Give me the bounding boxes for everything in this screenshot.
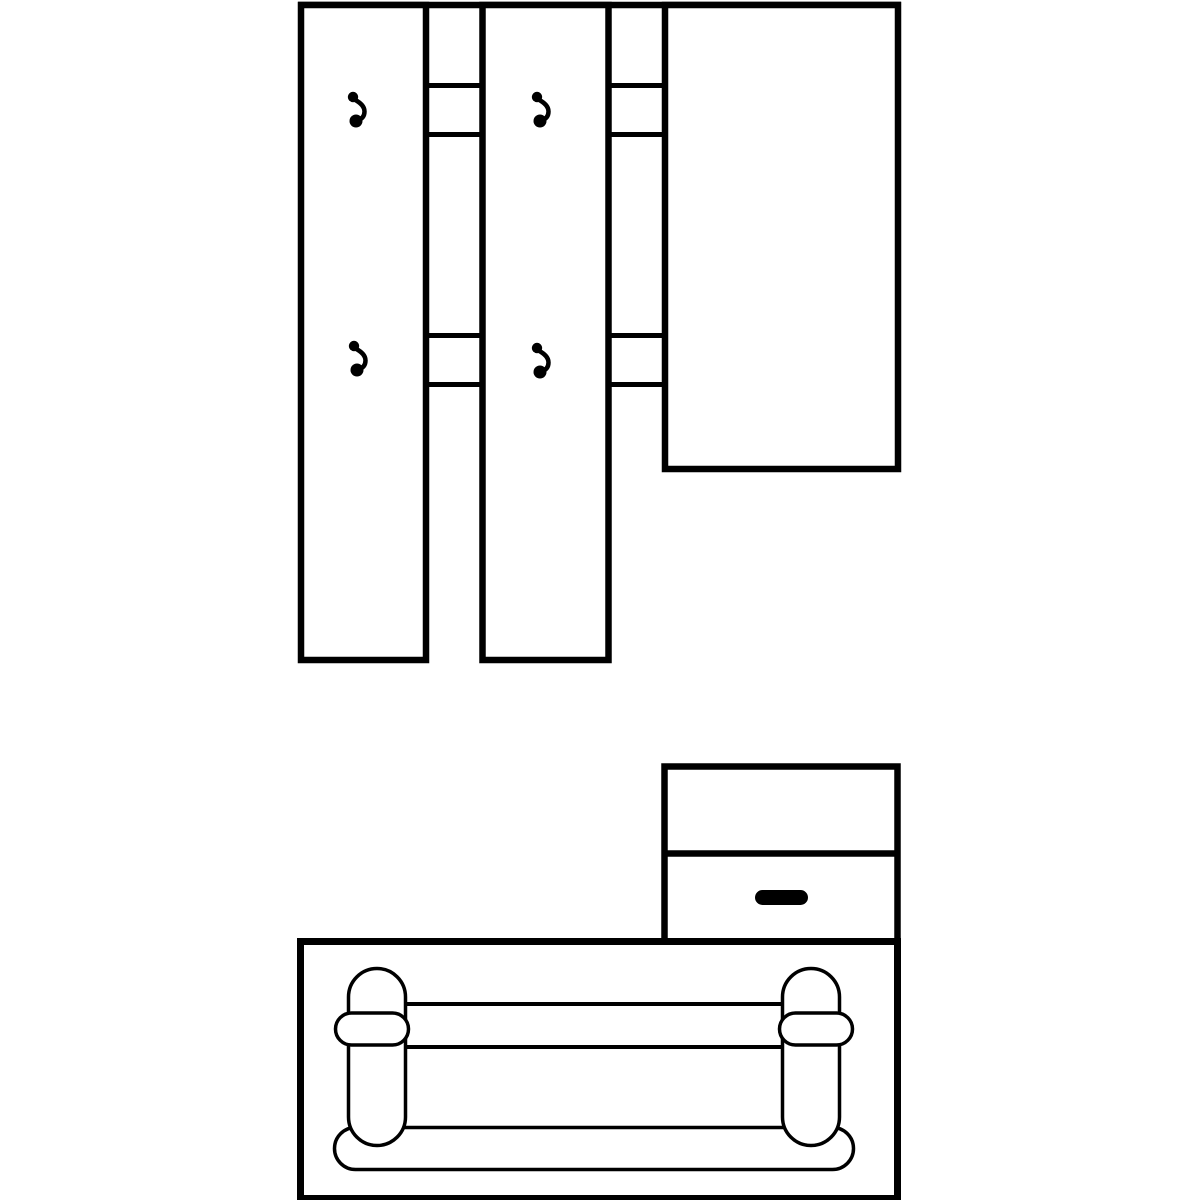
wall-coat-rack-unit (298, 5, 901, 660)
hook-ball-bottom (350, 115, 363, 128)
hook-ball-bottom (534, 366, 547, 379)
bench-side-support-left (349, 969, 406, 1146)
connector-rail-lower-right (605, 336, 668, 385)
hook-ball-bottom (351, 364, 364, 377)
bench-side-support-right (783, 969, 840, 1146)
hook-ball-top (532, 343, 542, 353)
drawer-handle (755, 890, 808, 905)
connector-rail-upper-right (605, 86, 668, 135)
bench-base-bar (335, 1128, 854, 1170)
hook-ball-top (532, 92, 542, 102)
mirror-panel (665, 5, 898, 469)
shoe-bench (301, 942, 898, 1199)
bench-strap-left (336, 1013, 409, 1045)
hook-ball-top (348, 92, 358, 102)
coat-panel-left (301, 5, 426, 660)
hook-ball-top (349, 341, 359, 351)
connector-rail-upper-left (423, 86, 485, 135)
hook-ball-bottom (534, 115, 547, 128)
bench-strap-right (780, 1013, 853, 1045)
connector-rail-lower-left (423, 336, 485, 385)
drawer-cabinet (663, 767, 899, 944)
furniture-drawing-canvas (0, 0, 1200, 1200)
hallway-furniture-line-drawing (0, 0, 1200, 1200)
